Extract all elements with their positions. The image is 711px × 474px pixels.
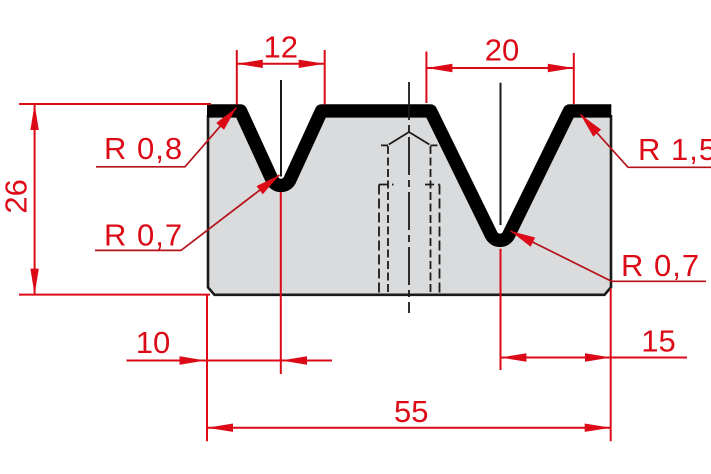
svg-text:10: 10: [136, 325, 170, 360]
svg-text:R 0,7: R 0,7: [621, 248, 700, 283]
svg-text:15: 15: [641, 324, 675, 359]
svg-text:R 0,7: R 0,7: [104, 218, 183, 253]
svg-text:R 1,5: R 1,5: [638, 132, 711, 167]
svg-text:R 0,8: R 0,8: [104, 131, 183, 166]
svg-text:55: 55: [394, 394, 428, 429]
svg-text:20: 20: [485, 33, 519, 68]
svg-text:26: 26: [0, 179, 34, 213]
svg-text:12: 12: [263, 30, 297, 65]
